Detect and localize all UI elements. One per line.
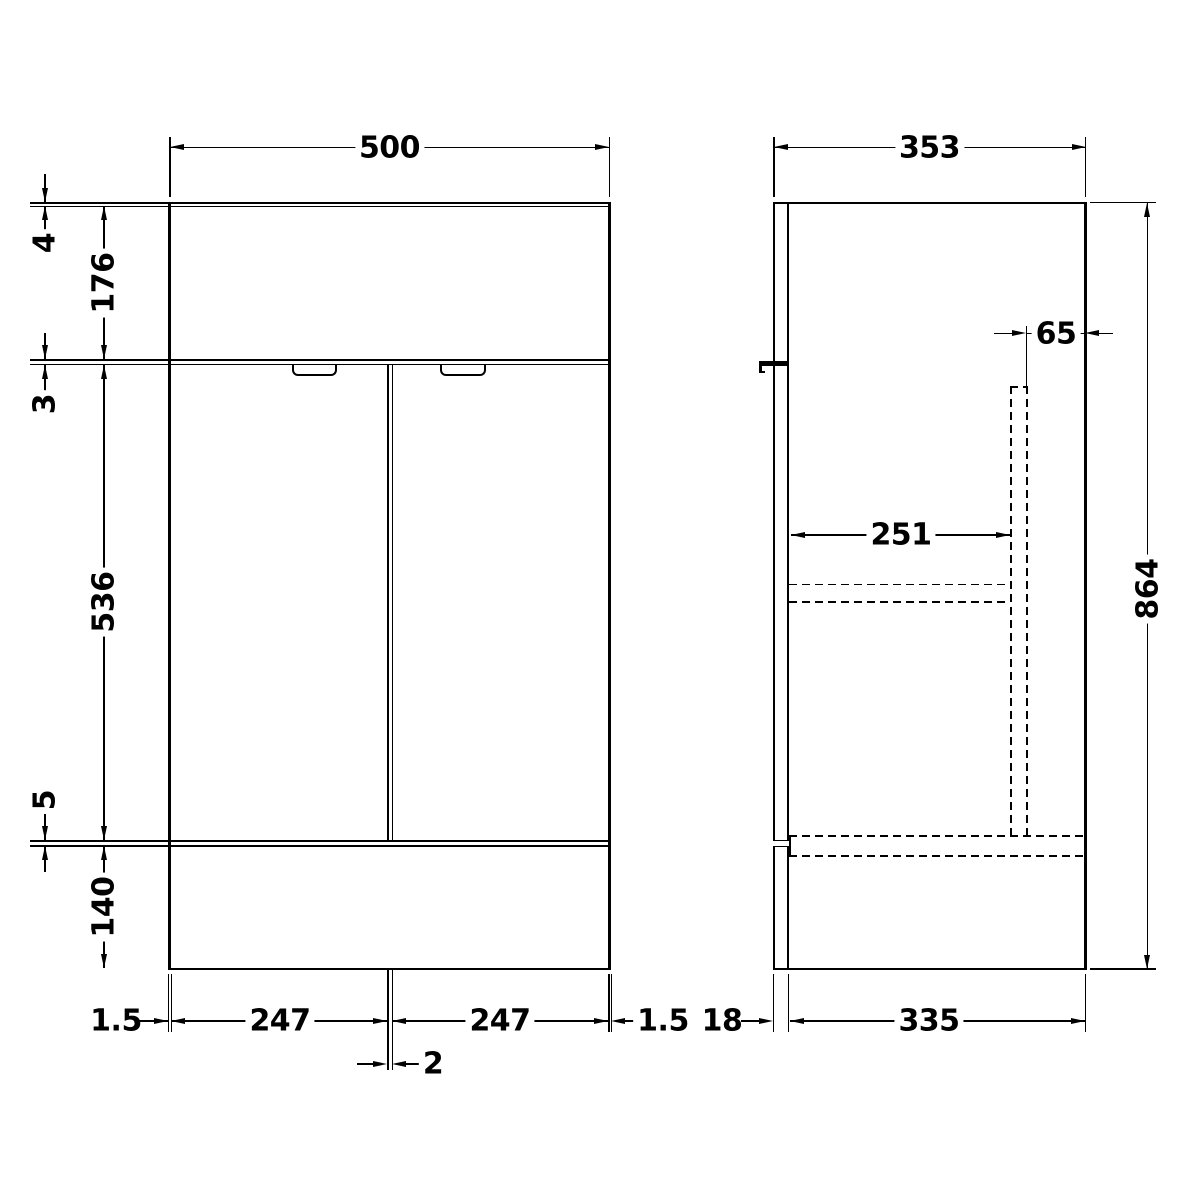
dim-label-door-gap: 2 bbox=[419, 1048, 447, 1080]
dim-18-arrow bbox=[759, 1018, 773, 1024]
dim-2-arrow-left bbox=[392, 1061, 406, 1067]
dim-1p5-right-arrow bbox=[611, 1018, 625, 1024]
dim-label-bottom-gap: 5 bbox=[29, 786, 61, 814]
dim-864-arrow-down bbox=[1144, 955, 1150, 969]
front-countertop-bottom-line bbox=[30, 206, 611, 207]
left-door-handle-notch bbox=[292, 365, 337, 376]
dim-353-arrow-left bbox=[774, 144, 788, 150]
front-door-bottom-line bbox=[30, 840, 611, 842]
front-plinth-top-line bbox=[30, 845, 611, 846]
dim-65-arrow-left bbox=[1085, 330, 1099, 336]
dim-335-arrow-right bbox=[1071, 1018, 1085, 1024]
side-hidden-bottom-panel-top-line bbox=[789, 835, 1084, 837]
front-door-split-ext-left bbox=[387, 970, 389, 1070]
dim-label-countertop-thickness: 4 bbox=[29, 229, 61, 257]
front-outline-left-side bbox=[168, 202, 171, 970]
dim-label-carcass-depth: 335 bbox=[894, 1005, 963, 1037]
dim-176-arrow-down bbox=[101, 345, 107, 359]
chain-ext-right-inner bbox=[608, 974, 609, 1032]
dim-label-overall-height: 864 bbox=[1132, 554, 1164, 623]
side-hidden-bottom-panel-bottom-line bbox=[789, 855, 1084, 857]
dim-247-right-arrow-left bbox=[392, 1018, 406, 1024]
side-door-bottom-tick-upper bbox=[773, 840, 789, 842]
dim-65-ext-line bbox=[1026, 326, 1027, 386]
side-chain-ext-rear bbox=[1085, 974, 1086, 1032]
dim-label-plinth-height: 140 bbox=[88, 872, 120, 941]
dim-335-arrow-left bbox=[790, 1018, 804, 1024]
dim-500-ext-right bbox=[609, 137, 610, 197]
dim-864-arrow-up bbox=[1144, 203, 1150, 217]
dim-247-right-arrow-right bbox=[594, 1018, 608, 1024]
dim-4-arrow-down bbox=[42, 188, 48, 202]
dim-140-arrow-up bbox=[101, 846, 107, 860]
dim-label-right-door-width: 247 bbox=[465, 1005, 534, 1037]
side-plinth-back-face bbox=[787, 846, 789, 969]
dim-251-arrow-left bbox=[791, 532, 805, 538]
front-plinth-bottom-line bbox=[168, 968, 611, 971]
dim-500-arrow-left bbox=[170, 144, 184, 150]
dim-65-tail-right bbox=[1099, 333, 1114, 334]
side-carcass-top-line bbox=[788, 202, 1087, 204]
dim-label-overall-width: 500 bbox=[355, 132, 424, 164]
dim-251-arrow-right bbox=[996, 532, 1010, 538]
side-handle-bar bbox=[759, 361, 789, 366]
dim-176-arrow-up bbox=[101, 206, 107, 220]
dim-label-right-reveal: 1.5 bbox=[633, 1005, 693, 1037]
front-apron-gap-top-line bbox=[30, 359, 611, 361]
dim-65-tail-left bbox=[994, 333, 1013, 334]
chain-ext-left-outer bbox=[168, 974, 169, 1032]
dim-65-arrow-right bbox=[1012, 330, 1026, 336]
dim-label-door-thickness: 18 bbox=[698, 1005, 747, 1037]
side-handle-foot bbox=[759, 371, 765, 373]
dim-140-arrow-down bbox=[101, 954, 107, 968]
side-hidden-shelf-bottom-line bbox=[789, 601, 1010, 603]
dim-label-apron-height: 176 bbox=[88, 248, 120, 317]
dim-4-arrow-up bbox=[42, 206, 48, 220]
front-door-split-right-line bbox=[392, 365, 394, 840]
dim-3-arrow-up bbox=[42, 365, 48, 379]
dim-label-rear-void: 65 bbox=[1032, 318, 1081, 350]
dim-label-overall-depth: 353 bbox=[895, 132, 964, 164]
dim-2-arrow-right bbox=[373, 1061, 387, 1067]
dim-label-door-height: 536 bbox=[88, 567, 120, 636]
dim-1p5-left-arrow bbox=[154, 1018, 168, 1024]
technical-drawing-canvas: 500 4 3 5 176 536 140 1.5 247 247 1.5 bbox=[0, 0, 1200, 1200]
side-hidden-back-panel-top-cap bbox=[1010, 386, 1028, 388]
dim-label-left-door-width: 247 bbox=[245, 1005, 314, 1037]
side-bottom-line bbox=[773, 968, 1087, 971]
side-hidden-back-panel-front-line bbox=[1010, 386, 1012, 836]
dim-2-tail-left bbox=[357, 1063, 374, 1064]
dim-3-arrow-down bbox=[42, 345, 48, 359]
side-door-front-face bbox=[773, 202, 775, 840]
dim-247-left-arrow-right bbox=[373, 1018, 387, 1024]
side-hidden-back-panel-rear-line bbox=[1026, 386, 1028, 836]
dim-536-arrow-up bbox=[101, 365, 107, 379]
side-chain-ext-door-front bbox=[773, 974, 774, 1032]
dim-247-left-arrow-left bbox=[171, 1018, 185, 1024]
side-bottom-panel-front-tick bbox=[789, 835, 791, 856]
side-door-back-face bbox=[787, 203, 789, 840]
front-outline-right-side bbox=[608, 202, 611, 970]
dim-label-top-gap: 3 bbox=[29, 390, 61, 418]
dim-536-arrow-down bbox=[101, 826, 107, 840]
side-hidden-shelf-top-line bbox=[789, 584, 1010, 586]
dim-18-tail bbox=[741, 1020, 759, 1021]
front-countertop-top-line bbox=[30, 202, 611, 204]
dim-5-arrow-up bbox=[42, 846, 48, 860]
right-door-handle-notch bbox=[440, 365, 486, 376]
dim-5-arrow-down bbox=[42, 826, 48, 840]
side-plinth-front-face bbox=[773, 846, 775, 969]
dim-353-arrow-right bbox=[1072, 144, 1086, 150]
dim-500-arrow-right bbox=[595, 144, 609, 150]
front-door-split-left-line bbox=[387, 365, 389, 840]
side-back-edge bbox=[1084, 202, 1087, 970]
dim-label-internal-depth: 251 bbox=[866, 519, 935, 551]
